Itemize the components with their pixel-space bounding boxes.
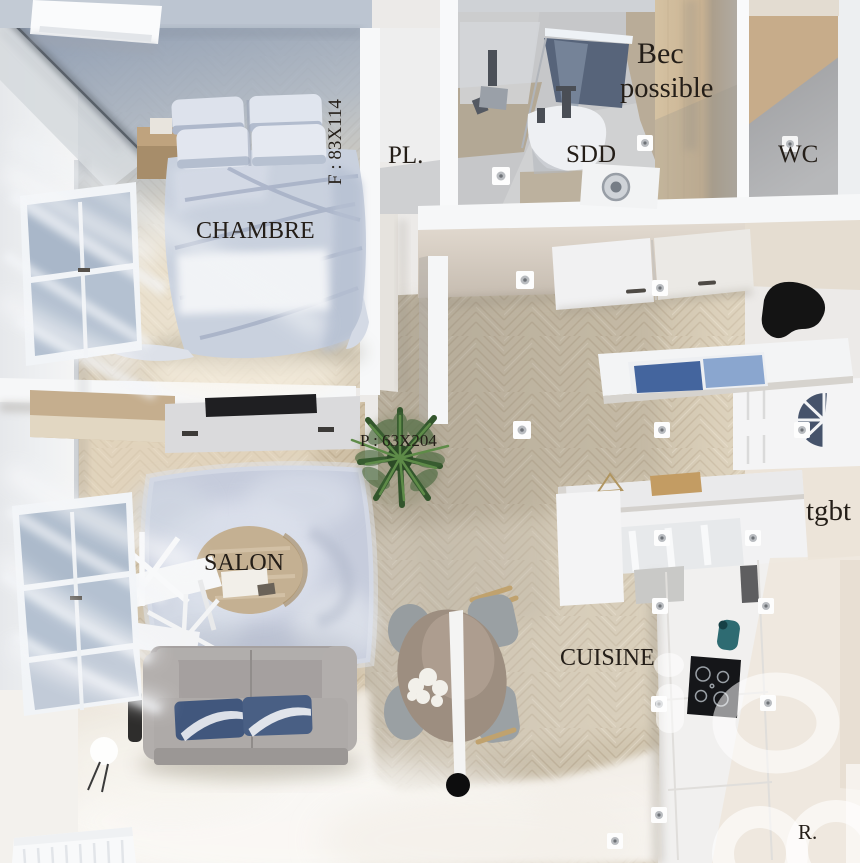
svg-text:CUISINE: CUISINE bbox=[560, 645, 655, 671]
svg-text:P : 63X204: P : 63X204 bbox=[360, 431, 437, 450]
svg-text:F : 83X114: F : 83X114 bbox=[325, 99, 346, 185]
svg-text:tgbt: tgbt bbox=[806, 495, 851, 527]
svg-text:Bec: Bec bbox=[637, 37, 684, 70]
svg-text:CHAMBRE: CHAMBRE bbox=[196, 218, 315, 244]
svg-text:R.: R. bbox=[798, 820, 817, 844]
svg-text:SALON: SALON bbox=[204, 550, 284, 576]
svg-text:SDD: SDD bbox=[566, 141, 616, 168]
svg-text:WC: WC bbox=[778, 141, 818, 168]
svg-text:possible: possible bbox=[620, 73, 713, 104]
svg-text:PL.: PL. bbox=[388, 142, 423, 169]
